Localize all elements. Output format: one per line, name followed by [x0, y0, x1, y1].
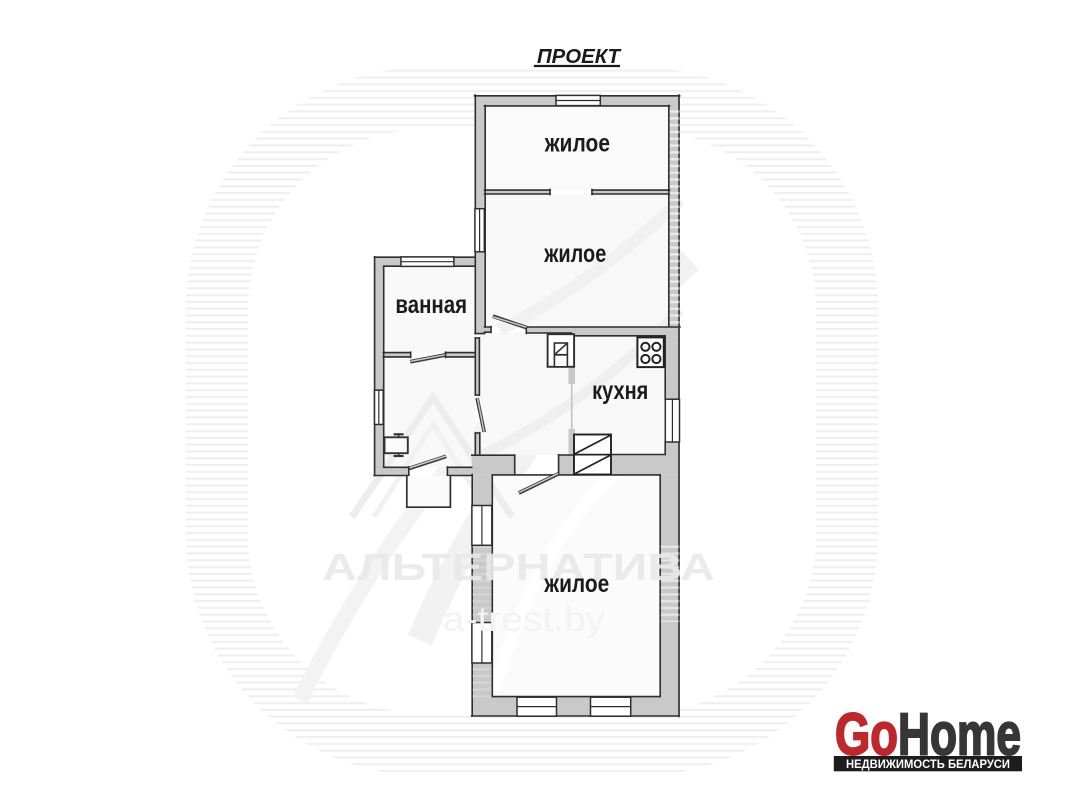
svg-text:a-trest.by: a-trest.by [443, 600, 606, 639]
svg-text:кухня: кухня [592, 377, 648, 405]
svg-text:АЛЬТЕРНАТИВА: АЛЬТЕРНАТИВА [322, 547, 715, 589]
svg-text:НЕДВИЖИМОСТЬ БЕЛАРУСИ: НЕДВИЖИМОСТЬ БЕЛАРУСИ [846, 757, 1010, 771]
svg-text:жилое: жилое [543, 570, 609, 598]
svg-text:ПРОЕКТ: ПРОЕКТ [537, 45, 621, 68]
svg-text:жилое: жилое [544, 130, 610, 158]
svg-text:ванная: ванная [395, 291, 467, 319]
svg-text:жилое: жилое [544, 240, 607, 268]
